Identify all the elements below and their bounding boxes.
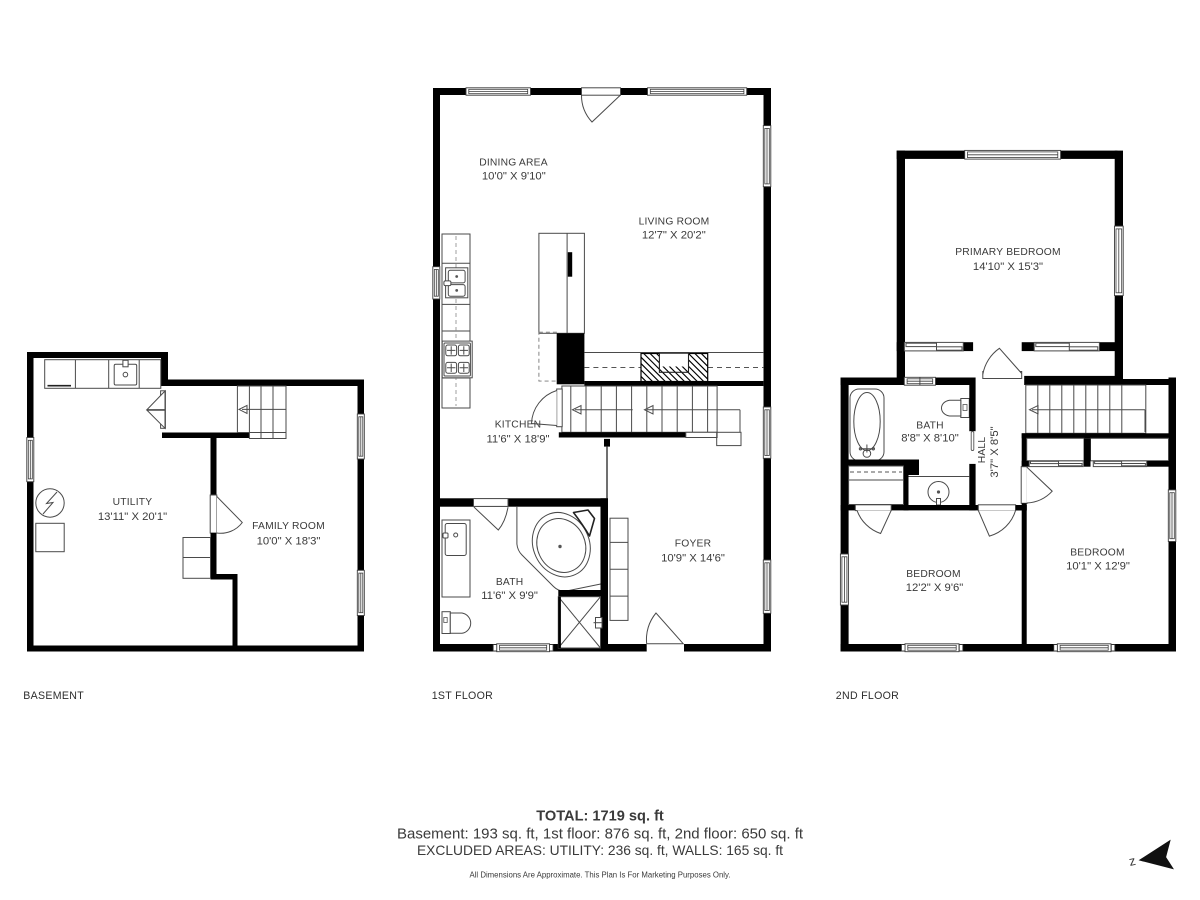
svg-text:8'8" X 8'10": 8'8" X 8'10" bbox=[901, 433, 959, 445]
svg-text:FOYER: FOYER bbox=[675, 539, 711, 550]
svg-text:10'0" X 9'10": 10'0" X 9'10" bbox=[482, 171, 546, 183]
svg-text:UTILITY: UTILITY bbox=[113, 497, 153, 508]
svg-text:DINING AREA: DINING AREA bbox=[479, 158, 548, 169]
svg-text:12'2" X 9'6": 12'2" X 9'6" bbox=[906, 582, 964, 594]
svg-text:PRIMARY BEDROOM: PRIMARY BEDROOM bbox=[955, 247, 1061, 258]
svg-text:10'1" X 12'9": 10'1" X 12'9" bbox=[1066, 561, 1130, 573]
svg-text:Basement: 193 sq. ft, 1st floo: Basement: 193 sq. ft, 1st floor: 876 sq.… bbox=[397, 826, 804, 843]
svg-text:11'6" X 18'9": 11'6" X 18'9" bbox=[486, 434, 549, 446]
svg-text:EXCLUDED AREAS: UTILITY: 236 s: EXCLUDED AREAS: UTILITY: 236 sq. ft, WAL… bbox=[417, 843, 783, 858]
svg-text:BEDROOM: BEDROOM bbox=[1070, 548, 1125, 559]
svg-text:12'7" X 20'2": 12'7" X 20'2" bbox=[642, 230, 706, 242]
svg-text:10'9" X 14'6": 10'9" X 14'6" bbox=[661, 553, 725, 565]
svg-text:11'6" X 9'9": 11'6" X 9'9" bbox=[481, 590, 538, 602]
svg-text:1ST FLOOR: 1ST FLOOR bbox=[432, 690, 493, 702]
svg-text:HALL: HALL bbox=[977, 437, 988, 464]
svg-text:10'0" X 18'3": 10'0" X 18'3" bbox=[257, 536, 321, 548]
svg-text:LIVING ROOM: LIVING ROOM bbox=[639, 217, 710, 228]
svg-text:13'11" X 20'1": 13'11" X 20'1" bbox=[98, 511, 167, 523]
svg-text:BEDROOM: BEDROOM bbox=[906, 569, 961, 580]
svg-text:BASEMENT: BASEMENT bbox=[23, 690, 84, 702]
svg-text:14'10" X 15'3": 14'10" X 15'3" bbox=[973, 261, 1043, 273]
svg-text:TOTAL: 1719 sq. ft: TOTAL: 1719 sq. ft bbox=[536, 809, 664, 825]
svg-text:FAMILY ROOM: FAMILY ROOM bbox=[252, 521, 325, 532]
svg-text:2ND FLOOR: 2ND FLOOR bbox=[836, 690, 899, 702]
svg-text:KITCHEN: KITCHEN bbox=[495, 420, 542, 431]
svg-text:3'7" X 8'5": 3'7" X 8'5" bbox=[989, 426, 1001, 477]
svg-text:All Dimensions Are Approximate: All Dimensions Are Approximate. This Pla… bbox=[469, 871, 730, 880]
svg-text:BATH: BATH bbox=[496, 577, 524, 588]
svg-text:BATH: BATH bbox=[916, 421, 944, 432]
